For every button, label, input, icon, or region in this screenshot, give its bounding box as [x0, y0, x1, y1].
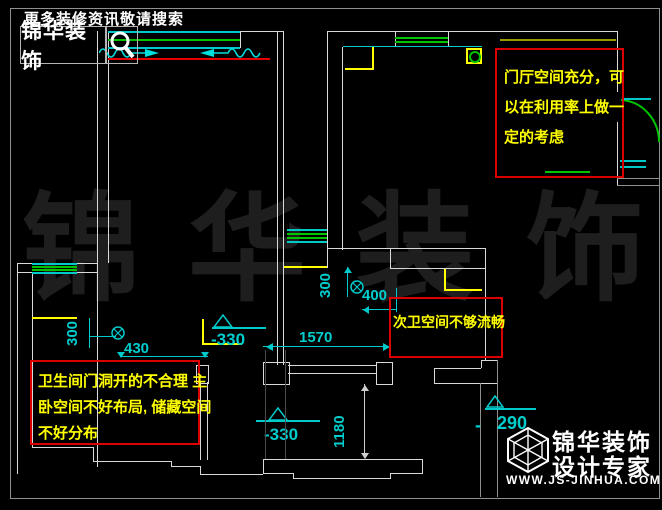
- annotation-line: 以在利用率上做一: [504, 93, 622, 123]
- brand-name: 锦华装饰: [21, 15, 106, 75]
- wall-segment: [390, 473, 422, 474]
- wall-segment: [480, 383, 481, 497]
- dimension-arrow: [262, 343, 273, 351]
- dimension-label: 300: [318, 273, 333, 298]
- wall-segment: [277, 31, 278, 365]
- wall-segment: [263, 459, 264, 474]
- wall-segment: [207, 382, 208, 460]
- wall-segment: [617, 178, 659, 179]
- extension-line: [285, 350, 286, 459]
- wall-segment: [263, 473, 294, 474]
- wall-segment: [390, 248, 391, 268]
- wall-segment: [422, 459, 423, 474]
- wall-segment: [200, 466, 201, 474]
- dimension-label: 430: [124, 341, 149, 356]
- window-line: [32, 269, 77, 271]
- dimension-line: [89, 318, 90, 348]
- cad-floorplan-screenshot: 锦 华 装 饰: [0, 0, 662, 510]
- annotation-line: 不好分布: [38, 421, 198, 447]
- dimension-line: [263, 346, 390, 347]
- annotation-line: 定的考虑: [504, 123, 622, 153]
- annotation-line: 次卫空间不够流畅: [393, 312, 501, 332]
- window-line: [395, 41, 448, 43]
- fixture-line: [345, 68, 374, 70]
- curtain-squiggle-icon: [198, 46, 268, 58]
- window-line: [32, 263, 77, 265]
- fixture-line: [202, 319, 204, 345]
- wall-block: [376, 362, 393, 385]
- elevation-marker-icon: [213, 314, 233, 328]
- fixture-line: [32, 317, 77, 319]
- fixture-line: [444, 289, 482, 291]
- fixture-line: [284, 266, 327, 268]
- wall-segment: [283, 31, 284, 365]
- wall-segment: [293, 478, 391, 479]
- window-line: [287, 233, 327, 235]
- door-leaf-line: [623, 98, 651, 100]
- annotation-line: 卫生间门洞开的不合理 主: [38, 369, 198, 395]
- wall-segment: [342, 47, 343, 250]
- dimension-label: 300: [65, 321, 80, 346]
- window-line: [32, 266, 77, 268]
- annotation-master-bath: 卫生间门洞开的不合理 主 卧空间不好布局, 储藏空间 不好分布: [30, 360, 200, 445]
- window-jamb: [395, 31, 396, 47]
- wall-segment: [93, 461, 171, 462]
- wall-segment: [200, 474, 263, 475]
- wall-segment: [77, 272, 97, 273]
- dimension-label: 1570: [299, 330, 332, 345]
- level-label: -330: [264, 426, 298, 443]
- dimension-arrow: [344, 263, 352, 273]
- level-line: [212, 327, 266, 329]
- wall-segment: [288, 373, 377, 374]
- brand-box: 锦华装饰: [20, 26, 107, 64]
- annotation-line: 门厅空间充分，可: [504, 63, 622, 93]
- wall-segment: [434, 383, 497, 384]
- annotation-second-bath: 次卫空间不够流畅: [389, 297, 503, 358]
- window-line: [32, 272, 77, 274]
- annotation-entry-hall: 门厅空间充分，可 以在利用率上做一 定的考虑: [495, 48, 624, 178]
- dimension-arrow: [361, 381, 369, 391]
- wall-segment: [93, 447, 94, 461]
- wall-segment: [17, 272, 32, 273]
- dimension-label: 1180: [332, 415, 347, 448]
- dimension-arrow: [201, 352, 209, 362]
- wall-segment: [327, 248, 485, 249]
- wall-segment: [288, 365, 377, 366]
- window-line: [395, 37, 448, 39]
- elevation-marker-icon: [486, 395, 504, 408]
- level-dash: -: [475, 416, 481, 434]
- window-line: [287, 241, 327, 243]
- wall-segment: [390, 268, 485, 269]
- wall-segment: [108, 31, 109, 263]
- search-button[interactable]: [105, 26, 138, 64]
- dimension-arrow: [359, 306, 369, 314]
- wall-segment: [263, 459, 422, 460]
- pipe-circle-icon: [469, 51, 481, 63]
- wall-segment: [481, 360, 497, 361]
- fixture-line: [444, 269, 446, 291]
- drain-symbol-icon: [110, 325, 126, 341]
- wall-segment: [17, 263, 18, 474]
- wall-segment: [434, 368, 435, 383]
- wall-segment: [434, 368, 481, 369]
- level-label: -330: [211, 331, 245, 348]
- wall-segment: [200, 382, 201, 460]
- dimension-line: [364, 384, 365, 458]
- jinhua-logo-icon: [504, 426, 552, 474]
- extension-line: [265, 350, 266, 459]
- wall-segment: [171, 466, 200, 467]
- wall-segment: [32, 447, 93, 448]
- window-line: [343, 46, 482, 47]
- dimension-arrow: [361, 453, 369, 463]
- wall-segment: [617, 185, 659, 186]
- window-jamb: [448, 31, 449, 47]
- door-swing-icon: [618, 95, 662, 145]
- wall-segment: [327, 31, 328, 268]
- wall-segment: [327, 31, 618, 32]
- level-line: [485, 408, 536, 410]
- wall-segment: [481, 360, 482, 368]
- soffit-line: [500, 39, 616, 41]
- window-line: [287, 237, 327, 239]
- dimension-label: 400: [362, 288, 387, 303]
- search-icon: [109, 31, 135, 59]
- logo-url: WWW.JS-JINHUA.COM: [506, 473, 661, 487]
- fixture-line: [372, 47, 374, 70]
- dimension-line: [120, 356, 208, 357]
- annotation-line: 卧空间不好布局, 储藏空间: [38, 395, 198, 421]
- window-line: [287, 229, 327, 231]
